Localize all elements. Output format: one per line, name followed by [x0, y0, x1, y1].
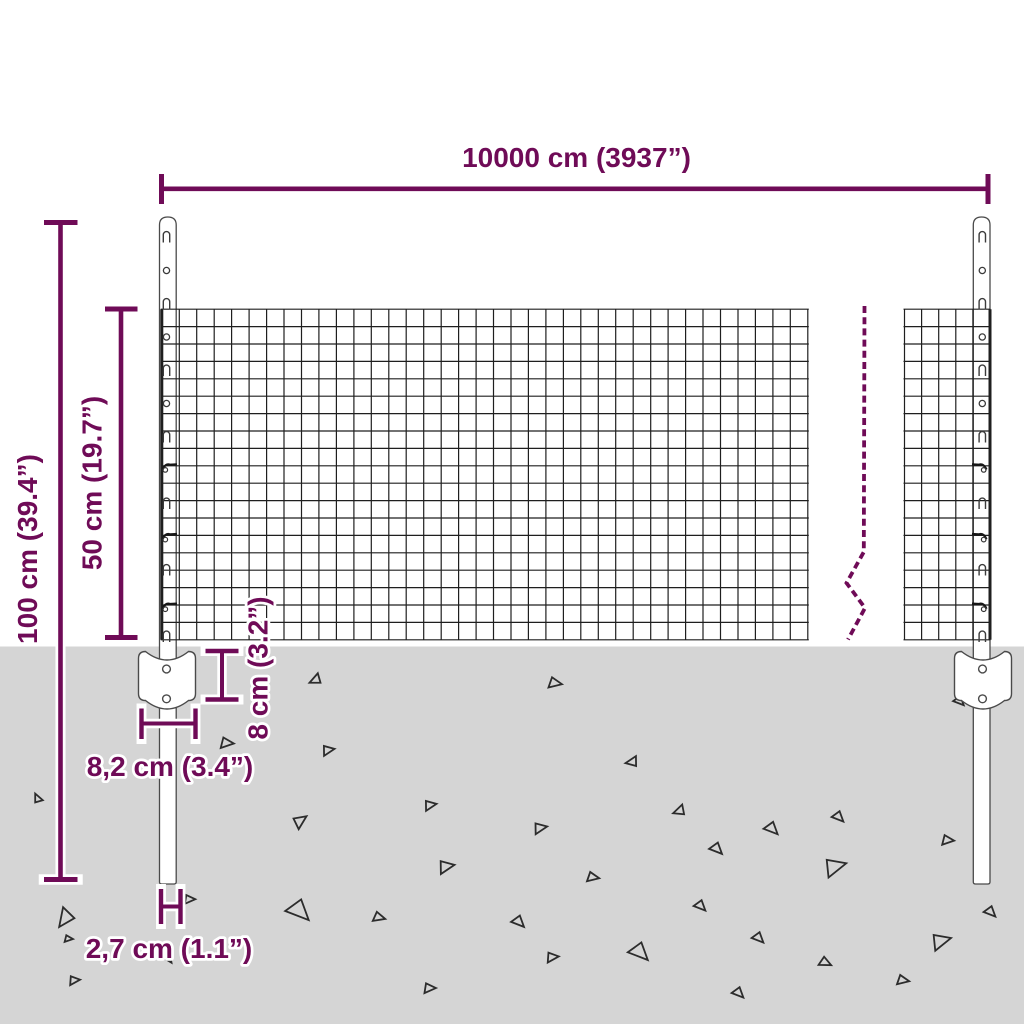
svg-text:100 cm (39.4”): 100 cm (39.4”) [12, 454, 43, 644]
svg-text:10000 cm (3937”): 10000 cm (3937”) [462, 142, 691, 173]
svg-text:8 cm (3.2”): 8 cm (3.2”) [243, 596, 274, 739]
svg-text:50 cm (19.7”): 50 cm (19.7”) [77, 396, 108, 570]
svg-text:8,2 cm (3.4”): 8,2 cm (3.4”) [87, 751, 254, 782]
svg-text:2,7 cm (1.1”): 2,7 cm (1.1”) [86, 933, 253, 964]
